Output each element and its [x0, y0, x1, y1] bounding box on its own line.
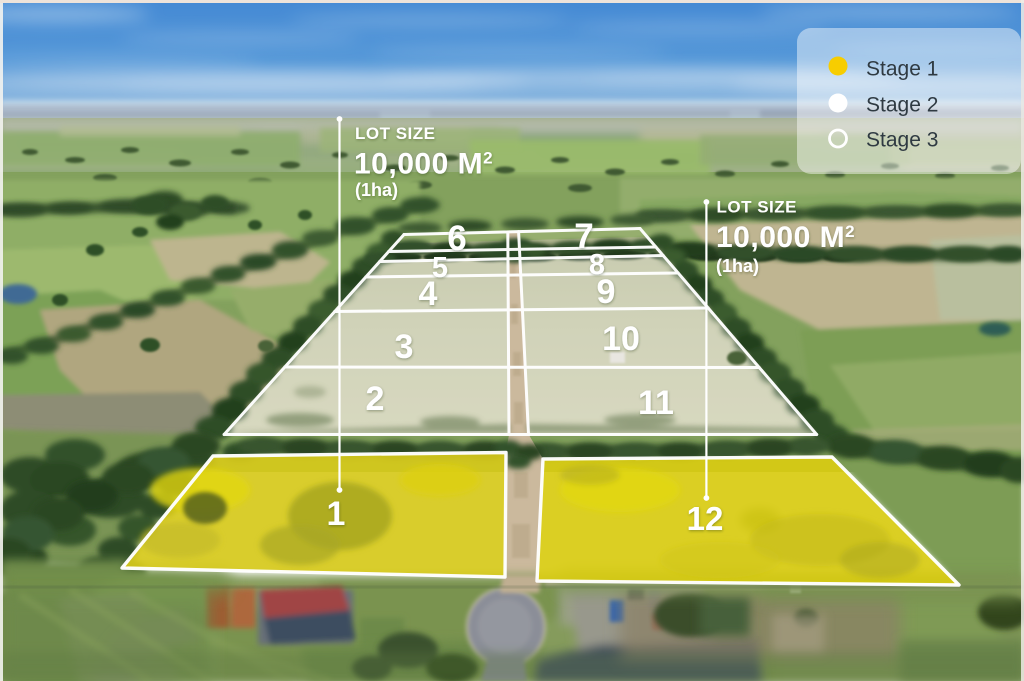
svg-text:4: 4 — [419, 275, 438, 313]
svg-text:(1ha): (1ha) — [716, 256, 759, 276]
svg-text:3: 3 — [395, 328, 414, 366]
svg-text:10,000 M2: 10,000 M2 — [716, 221, 855, 254]
svg-text:Stage 3: Stage 3 — [866, 129, 938, 152]
svg-text:9: 9 — [597, 273, 616, 311]
svg-text:Stage 1: Stage 1 — [866, 58, 938, 81]
svg-text:12: 12 — [687, 500, 724, 537]
svg-text:(1ha): (1ha) — [355, 180, 398, 200]
svg-text:2: 2 — [366, 380, 385, 418]
svg-text:10,000 M2: 10,000 M2 — [354, 148, 493, 181]
svg-text:6: 6 — [447, 219, 466, 258]
svg-text:Stage 2: Stage 2 — [866, 94, 938, 117]
svg-text:LOT SIZE: LOT SIZE — [717, 198, 798, 217]
svg-text:10: 10 — [602, 320, 640, 358]
svg-text:1: 1 — [327, 495, 346, 533]
svg-text:11: 11 — [638, 384, 674, 422]
svg-text:LOT SIZE: LOT SIZE — [355, 124, 436, 143]
